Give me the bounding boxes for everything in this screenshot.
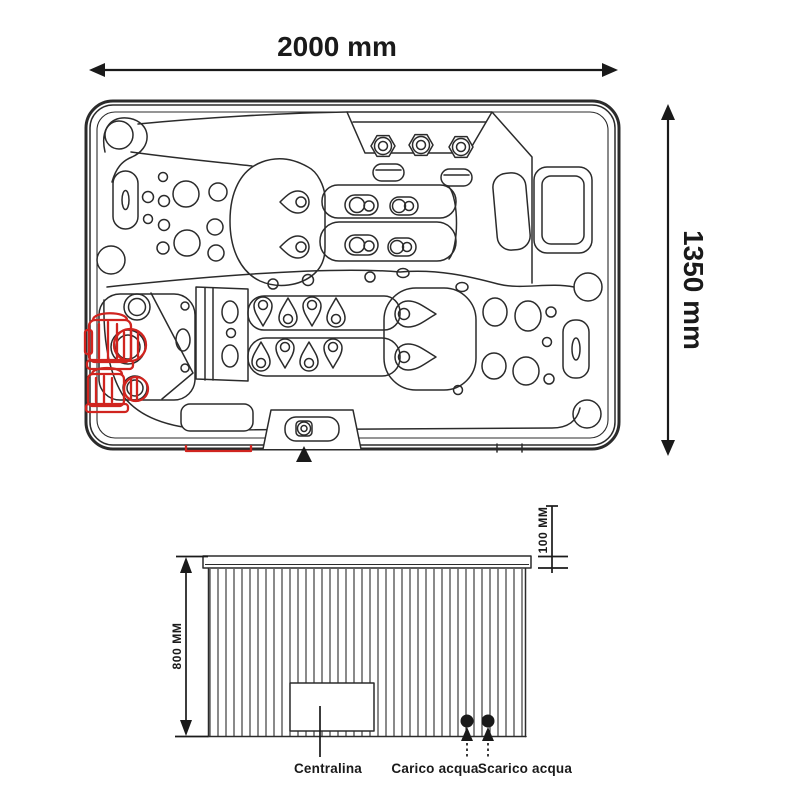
teardrop-jet-icon [280, 236, 309, 258]
valve-knob-icon [409, 135, 433, 156]
width-dimension: 2000 mm [89, 31, 618, 77]
teardrop-jet-icon [280, 191, 309, 213]
diagram-canvas: 2000 mm 1350 mm [0, 0, 800, 800]
control-unit-box [290, 683, 374, 731]
spa-top-view [85, 101, 619, 462]
spa-dimension-diagram: 2000 mm 1350 mm [0, 0, 800, 800]
side-pillow [563, 320, 589, 378]
arrow-up-icon [661, 104, 675, 120]
height-dimension-label: 1350 mm [678, 230, 709, 350]
corner-jet-right-top [574, 273, 602, 301]
control-valve-panel [347, 112, 492, 186]
height-dimension: 1350 mm [661, 104, 709, 456]
valve-knob-icon [449, 137, 473, 158]
rail-thickness-dimension: 100 MM [536, 506, 568, 573]
rail-thickness-label: 100 MM [536, 507, 550, 554]
jet-cluster-left [113, 171, 227, 261]
spa-side-view: Centralina Carico acqua Scarico acqua 80… [170, 506, 572, 776]
arrow-down-icon [661, 440, 675, 456]
water-inlet-label: Carico acqua [391, 761, 478, 776]
water-outlet-label: Scarico acqua [478, 761, 572, 776]
arrow-right-icon [602, 63, 618, 77]
jet-cluster-right [454, 298, 590, 395]
lower-lounger [99, 269, 580, 431]
arrow-left-icon [89, 63, 105, 77]
control-unit-label: Centralina [294, 761, 362, 776]
headrest-right [492, 167, 592, 253]
top-rail [203, 556, 531, 568]
width-dimension-label: 2000 mm [277, 31, 397, 62]
side-height-dimension: 800 MM [170, 557, 208, 737]
side-pillow [113, 171, 138, 229]
pump-unit-highlight [85, 313, 148, 412]
side-height-label: 800 MM [170, 623, 184, 670]
corner-jet-mid-left [97, 246, 125, 274]
valve-knob-icon [371, 136, 395, 157]
upper-lounger [230, 159, 457, 286]
tub-shell [86, 101, 619, 449]
bottom-step [181, 404, 522, 462]
